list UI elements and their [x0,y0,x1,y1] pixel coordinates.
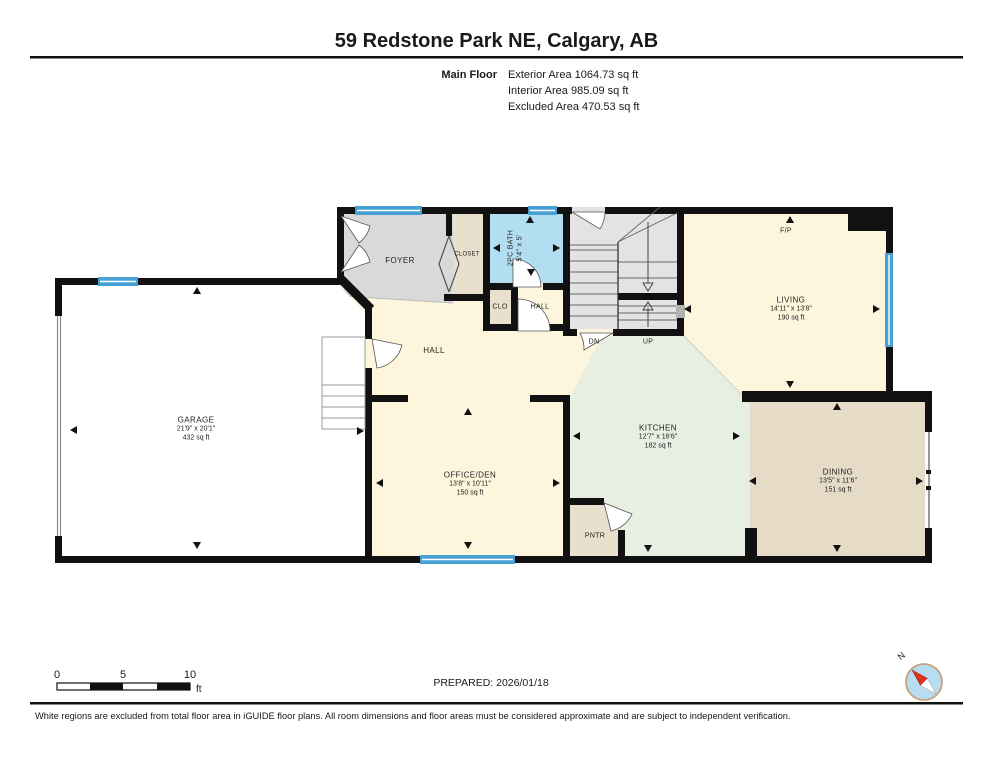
floor-label: Main Floor [345,69,497,81]
dining-label: DINING 13'5" x 11'6" 151 sq ft [819,467,857,495]
closet-label: CLOSET [454,251,479,259]
bath-left-wall [483,207,490,331]
foyer-label: FOYER [385,256,415,266]
patio-door [926,432,931,528]
stairs-mid-wall [618,293,684,300]
exterior-area: Exterior Area 1064.73 sq ft [508,69,639,85]
stairs-wall-patch [676,305,685,318]
disclaimer-text: White regions are excluded from total fl… [35,711,791,721]
scale-five: 5 [120,669,126,681]
compass [906,664,942,700]
kitchen-label: KITCHEN 12'7" x 16'6" 182 sq ft [639,423,677,451]
prepared-date: PREPARED: 2026/01/18 [433,677,548,689]
office-label: OFFICE/DEN 13'8" x 10'11" 150 sq ft [444,470,496,498]
office-right-wall [563,395,570,563]
bath-window [528,206,557,215]
scale-bar [57,683,190,690]
hall-small-label: HALL [531,304,550,313]
footer-rule [30,702,963,705]
fireplace-label: F/P [780,228,792,237]
stairs-up-label: UP [643,339,653,348]
stairs-down-label: DN [589,339,600,348]
clo-bottom-wall [483,324,518,331]
bath-label: 2PC BATH 5'4" x 5' [507,230,525,266]
dining-right-stub-bottom [925,528,932,563]
room-fills [62,207,925,563]
closet-divider-stub [446,210,452,236]
office-window [420,555,515,564]
dining-right-stub-top [925,395,932,432]
pantry-label: PNTR [585,533,605,542]
floor-plan-svg [0,0,993,768]
foyer-window [355,206,422,215]
clo-label: CLO [492,304,507,313]
living-window [885,253,893,347]
bath-bottom-wall-left [483,283,513,290]
title-rule [30,56,963,59]
living-dining-wall [742,391,932,402]
garage-door [58,316,61,536]
garage-window [98,277,138,286]
scale-ten: 10 [184,669,196,681]
area-stats: Exterior Area 1064.73 sq ft Interior Are… [508,69,639,117]
kitchen-dining-stub [745,528,757,556]
garage-label: GARAGE 21'9" x 20'1" 432 sq ft [177,415,215,443]
hall-label: HALL [423,346,445,356]
garage-left-stub-top [55,278,62,316]
office-top-wall-left [365,395,408,402]
interior-area: Interior Area 985.09 sq ft [508,85,639,101]
pantry-top-wall [563,498,604,505]
scale-zero: 0 [54,669,60,681]
floor-plan-page: { "header": { "title": "59 Redstone Park… [0,0,993,768]
stairs-left-wall [563,207,570,336]
page-title: 59 Redstone Park NE, Calgary, AB [0,30,993,53]
pantry-right-stub [618,530,625,556]
stairs-bottom-wall-left [563,329,577,336]
excluded-area: Excluded Area 470.53 sq ft [508,101,639,117]
stairs-floor [570,207,677,329]
living-label: LIVING 14'11" x 13'8" 190 sq ft [770,295,812,323]
stairs-bottom-wall-right [613,329,684,336]
garage-steps [322,337,365,429]
scale-unit: ft [196,684,202,695]
